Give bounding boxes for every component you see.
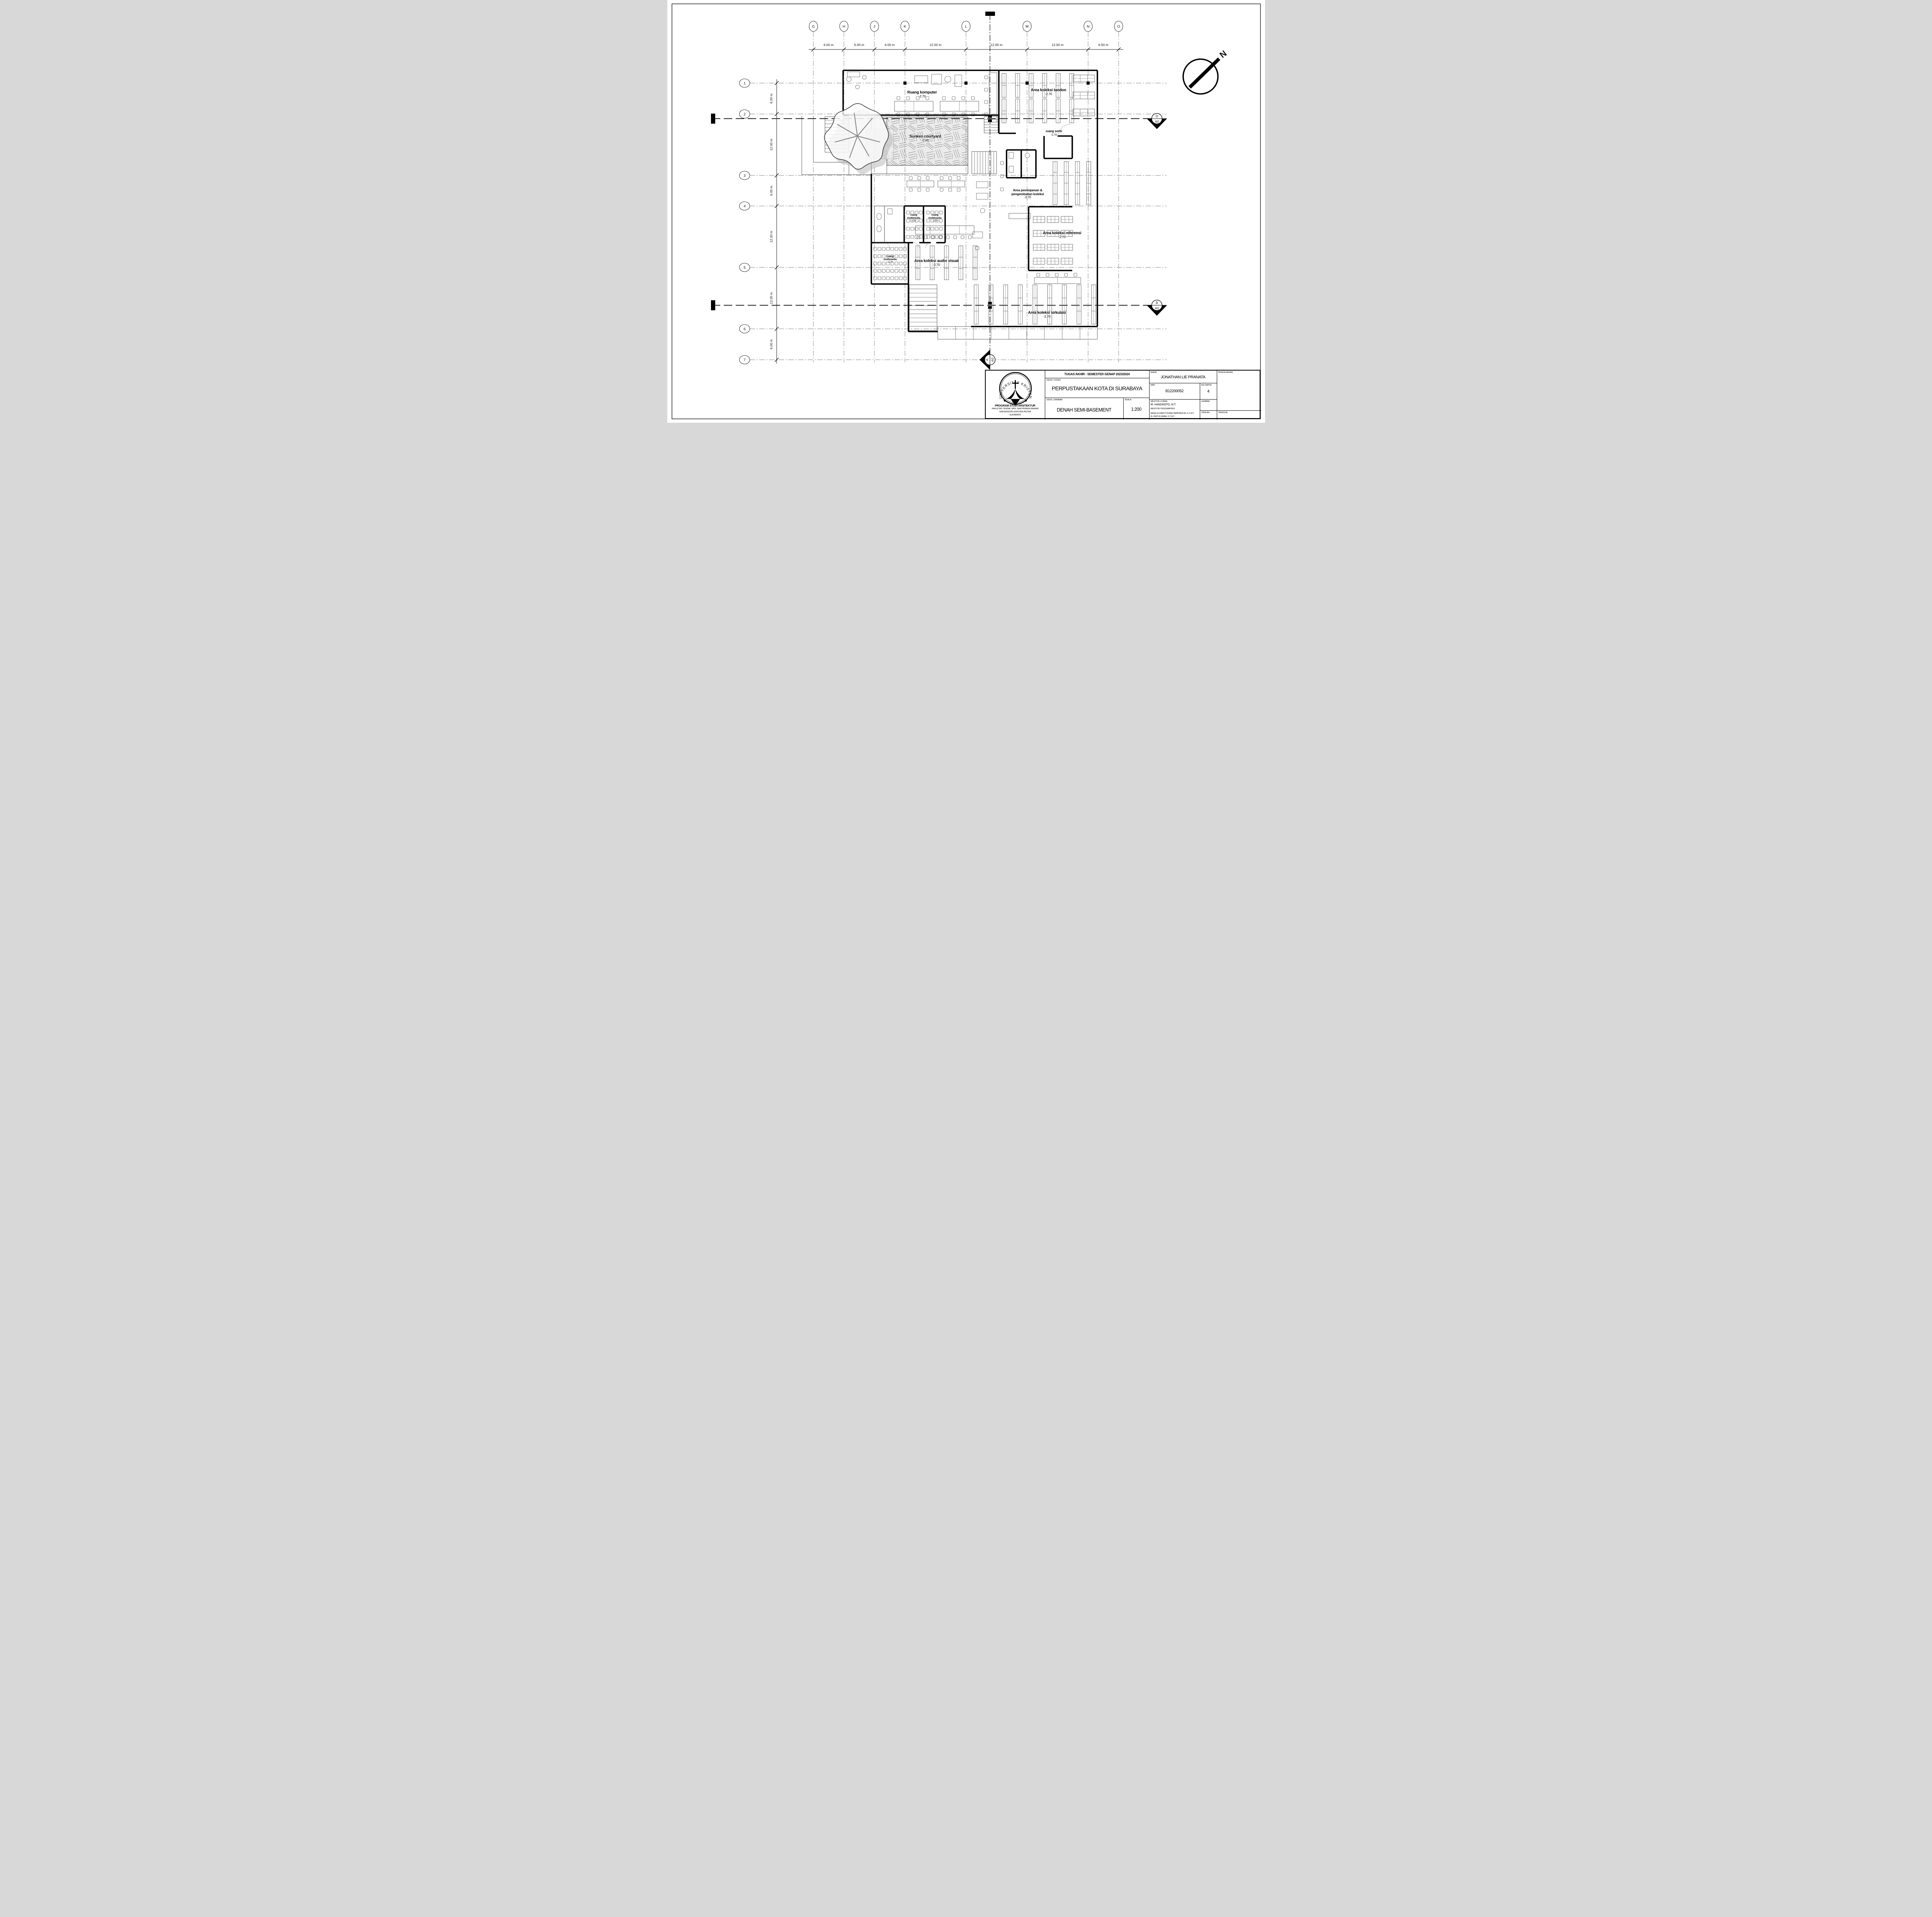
room-label-area-koleksi-referensi: Area koleksi referensi-2.70	[1043, 231, 1082, 239]
room-label-area-koleksi-sirkulasi: Area koleksi sirkulasi-2.70	[1028, 311, 1066, 319]
toilet-fixture	[877, 226, 881, 232]
column-span-label: 6.00 m	[884, 43, 895, 47]
row-span-label: 12.00 m	[769, 139, 773, 151]
chair	[940, 188, 943, 191]
room-level: -2.70	[914, 263, 959, 267]
chair	[1055, 273, 1058, 276]
judul-gambar-label: JUDUL GAMBAR	[1046, 399, 1063, 401]
chair	[971, 97, 975, 100]
room-name: ruang multimedia	[907, 214, 920, 219]
lounge-sofa	[976, 182, 988, 188]
chair	[899, 262, 902, 265]
planter	[862, 75, 866, 79]
mentor-utama-label: MENTOR UTAMA	[1151, 400, 1168, 403]
chair	[897, 97, 900, 100]
chair	[906, 235, 910, 238]
room-level: -2.70	[929, 219, 942, 222]
chair	[935, 227, 938, 230]
chair	[899, 255, 902, 258]
chair	[949, 177, 952, 180]
room-label-ruang-sortir: ruang sortir-2.70	[1046, 130, 1062, 136]
grid-bubble-label: M	[1026, 25, 1029, 29]
chair	[874, 262, 877, 265]
chair	[899, 277, 902, 280]
toilet-fixture	[877, 213, 881, 219]
grid-bubble-label: L	[965, 25, 967, 29]
mentor-utama: IR. HANDINOTO, M.T.	[1151, 403, 1176, 406]
section-marker-d: DA0	[1147, 114, 1167, 129]
lounge-chair	[955, 75, 962, 87]
column-marker	[964, 82, 968, 85]
column-span-label: 6.00 m	[854, 43, 864, 47]
sink	[888, 209, 892, 214]
jumlah-label: JUMLAH	[1201, 412, 1210, 414]
room-level: -2.70	[884, 261, 897, 264]
chair	[968, 236, 971, 239]
title-block: UNIVERSITAS KRISTEN PETRA	[985, 370, 1260, 419]
chair	[939, 227, 942, 230]
row-span-label: 6.00 m	[769, 186, 773, 196]
mentor-pendamping-1: ANGELA CHRISTYSONIA TAMPUBOLON, S.T.,M.T…	[1151, 412, 1194, 415]
chair	[911, 227, 914, 230]
chair	[935, 235, 938, 238]
chair	[961, 236, 964, 239]
lounge-chair	[932, 74, 942, 84]
toilet-fixture	[1009, 166, 1014, 172]
university-logo: UNIVERSITAS KRISTEN PETRA	[986, 371, 1045, 405]
grid-bubble-label: N	[1087, 25, 1089, 29]
tanggal-cell: TANGGAL	[1217, 410, 1261, 420]
section-node	[988, 302, 992, 304]
room-level: -2.70	[907, 95, 937, 99]
mentor-pendamping-2: Dr. FENY ELSIANA, S.T.,M.T.	[1151, 415, 1175, 418]
column-span-label: 12.00 m	[1051, 43, 1063, 47]
row-span-label: 12.00 m	[769, 231, 773, 243]
section-node	[988, 306, 992, 309]
section-end-bar	[985, 12, 995, 16]
chair	[882, 247, 885, 250]
grid-bubble-label: 1	[743, 82, 745, 86]
chair	[886, 269, 889, 272]
section-node	[988, 119, 992, 122]
room-label-sunken-courtyard: Sunken courtyard-2.85	[910, 134, 941, 143]
pengesahan-cell: PENGESAHAN	[1217, 371, 1261, 410]
kelompok-label: KELOMPOK	[1201, 384, 1212, 386]
nama-label: NAMA	[1151, 371, 1157, 374]
chair	[878, 269, 881, 272]
room-level: -2.70	[1043, 235, 1082, 239]
chair	[1000, 175, 1003, 178]
project-title: PERPUSTAKAAN KOTA DI SURABAYA	[1045, 385, 1149, 391]
grid-bubble-label: 4	[743, 204, 745, 209]
grid-bubble-label: 3	[743, 174, 745, 178]
room-label-ruang-multimedia-1: ruang multimedia-2.70	[907, 214, 920, 222]
column-span-label: 6.00 m	[823, 43, 833, 47]
grid-bubble-label: H	[842, 25, 845, 29]
scale-value: 1:200	[1124, 407, 1149, 412]
chair	[926, 188, 929, 191]
chair	[918, 177, 921, 180]
floor-plan-sheet: 6.00 m6.00 m6.00 m12.00 m12.00 m12.00 m6…	[667, 0, 1265, 423]
chair	[1037, 273, 1040, 276]
column-span-label: 12.00 m	[990, 43, 1002, 47]
room-level: -2.70	[1011, 196, 1044, 199]
lounge-sofa	[915, 76, 928, 83]
kelompok-cell: KELOMPOK 4	[1200, 383, 1217, 399]
jumlah-cell: JUMLAH	[1200, 410, 1217, 420]
column-marker	[1087, 82, 1090, 85]
chair	[942, 97, 946, 100]
section-sheet: A0	[1155, 306, 1159, 310]
grid-bubble-label: 7	[743, 358, 745, 362]
chair	[985, 88, 988, 91]
chair	[895, 277, 898, 280]
sink	[1025, 153, 1030, 158]
grid-bubble-label: 2	[743, 112, 745, 117]
column-marker	[903, 82, 906, 85]
institution-cell: UNIVERSITAS KRISTEN PETRA	[986, 371, 1045, 420]
chair	[931, 227, 934, 230]
room-level: -2.70	[907, 219, 920, 222]
grid-bubble-label: G	[812, 25, 815, 29]
skala-label: SKALA	[1125, 399, 1132, 401]
institution-lines: PROGRAM STUDI ARSITEKTUR FAKULTAS TEKNIK…	[986, 404, 1045, 417]
section-marker-b: BA0	[1147, 300, 1167, 316]
room-name: ruang multimedia	[884, 255, 897, 261]
stairs	[972, 151, 997, 174]
grid-bubble-label: O	[1117, 25, 1120, 29]
nrp-label: NRP	[1151, 384, 1155, 386]
chair	[1046, 273, 1049, 276]
chair	[946, 236, 949, 239]
section-sheet: A0	[1155, 120, 1159, 124]
institution-line: SURABAYA	[986, 414, 1045, 417]
room-label-area-koleksi-audio-visual: Area koleksi audio visual-2.70	[914, 259, 959, 267]
service-desk	[1009, 213, 1031, 219]
chair	[949, 188, 952, 191]
room-level: -2.70	[1046, 133, 1062, 136]
chair	[1000, 162, 1003, 165]
room-name: ruang multimedia	[929, 214, 942, 219]
chair	[891, 277, 894, 280]
student-name: JONATHAN LIE PRANATA	[1150, 375, 1217, 379]
nrp-cell: NRP B12200052	[1149, 383, 1200, 399]
kelompok-value: 4	[1200, 389, 1217, 394]
student-nrp: B12200052	[1150, 389, 1200, 393]
mentor-cell: MENTOR UTAMA IR. HANDINOTO, M.T. MENTOR …	[1149, 399, 1200, 420]
column-marker	[1026, 82, 1029, 85]
row-span-label: 12.00 m	[769, 292, 773, 304]
mentor-pendamping-label: MENTOR PENDAMPING	[1151, 408, 1175, 410]
bench	[847, 72, 860, 77]
lembar-label: LEMBAR	[1201, 400, 1210, 403]
chair	[899, 269, 902, 272]
lounge-sofa	[976, 193, 988, 199]
lembar-cell: LEMBAR	[1200, 399, 1217, 410]
coffee-table	[945, 76, 951, 82]
room-label-ruang-komputer: Ruang komputer-2.70	[907, 90, 937, 99]
chair	[886, 277, 889, 280]
site-layer	[672, 4, 1260, 419]
section-sheet: A0	[990, 358, 994, 362]
grid-bubble-label: 5	[743, 266, 745, 270]
room-label-ruang-multimedia-3: ruang multimedia-2.70	[884, 255, 897, 264]
chair	[926, 177, 929, 180]
room-level: -2.70	[1028, 315, 1066, 319]
chair	[906, 227, 910, 230]
chair	[878, 255, 881, 258]
chair	[1000, 188, 1003, 191]
chair	[895, 269, 898, 272]
chair	[940, 177, 943, 180]
chair	[985, 76, 988, 79]
judul-gambar-cell: JUDUL GAMBAR DENAH SEMI-BASEMENT	[1045, 398, 1123, 420]
coffee-table	[980, 208, 985, 213]
institution-line: UNIVERSITAS KRISTEN PETRA	[986, 411, 1045, 414]
chair	[1074, 273, 1077, 276]
terrace-strip	[938, 327, 1097, 339]
chair	[911, 235, 914, 238]
drawing-title: DENAH SEMI-BASEMENT	[1045, 407, 1123, 413]
room-name: Area peminjaman & pengembalian koleksi	[1011, 189, 1044, 196]
grid-bubble-label: 6	[743, 327, 745, 332]
chair	[927, 227, 930, 230]
planter	[855, 85, 859, 89]
chair	[874, 255, 877, 258]
room-label-area-peminjaman: Area peminjaman & pengembalian koleksi-2…	[1011, 189, 1044, 199]
section-marker-a: AA0	[980, 350, 995, 370]
chair	[952, 97, 955, 100]
section-letter: D	[1155, 114, 1158, 118]
grid-lines-layer: 6.00 m6.00 m6.00 m12.00 m12.00 m12.00 m6…	[750, 32, 1167, 364]
chair	[918, 188, 921, 191]
annotation-layer: GHJKLMNO1234567NDA0BA0AA0	[739, 21, 1228, 370]
chair	[909, 188, 912, 191]
room-label-ruang-multimedia-2: ruang multimedia-2.70	[929, 214, 942, 222]
door-swing	[884, 243, 890, 249]
chair	[878, 277, 881, 280]
door-swing	[914, 243, 919, 248]
north-label: N	[1218, 48, 1228, 60]
pengesahan-label: PENGESAHAN	[1218, 371, 1233, 374]
column-span-label: 12.00 m	[929, 43, 941, 47]
chair	[878, 247, 881, 250]
chair	[878, 262, 881, 265]
chair	[1065, 273, 1068, 276]
room-label-area-koleksi-tandon: Area koleksi tandon-2.70	[1031, 88, 1066, 96]
section-letter: A	[985, 359, 989, 361]
chair	[891, 247, 894, 250]
grid-bubble-label: K	[903, 25, 906, 29]
tanggal-label: TANGGAL	[1218, 412, 1228, 414]
section-end-bar	[711, 114, 715, 124]
floor-plan-drawing: 6.00 m6.00 m6.00 m12.00 m12.00 m12.00 m6…	[667, 0, 1265, 423]
institution-line: PROGRAM STUDI ARSITEKTUR	[986, 404, 1045, 408]
institution-line: FAKULTAS TEKNIK SIPIL DAN PERENCANAAN	[986, 408, 1045, 411]
chair	[962, 97, 965, 100]
north-arrow-needle	[1190, 59, 1219, 87]
titleblock-header: TUGAS AKHIR - SEMESTER GENAP 2023/2024	[1045, 371, 1149, 378]
judul-tugas-cell: JUDUL TUGAS PERPUSTAKAAN KOTA DI SURABAY…	[1045, 378, 1149, 398]
walls-layer	[843, 70, 1097, 332]
page-border	[672, 4, 1260, 419]
planter	[847, 77, 851, 82]
chair	[886, 247, 889, 250]
chair	[919, 227, 922, 230]
toilet-partition	[874, 206, 904, 243]
nama-cell: NAMA JONATHAN LIE PRANATA	[1149, 371, 1217, 383]
chair	[954, 236, 957, 239]
skala-cell: SKALA 1:200	[1123, 398, 1149, 420]
judul-tugas-label: JUDUL TUGAS	[1046, 379, 1061, 381]
chair	[874, 269, 877, 272]
chair	[882, 277, 885, 280]
column-span-label: 6.00 m	[1098, 43, 1108, 47]
grid-bubble-label: J	[873, 25, 875, 29]
chair	[957, 177, 960, 180]
chair	[985, 100, 988, 104]
chair	[882, 269, 885, 272]
room-level: -2.85	[910, 139, 941, 143]
chair	[899, 247, 902, 250]
room-level: -2.70	[1031, 92, 1066, 96]
section-letter: B	[1156, 301, 1158, 305]
chair	[957, 188, 960, 191]
stairs	[909, 285, 937, 330]
chair	[909, 177, 912, 180]
chair	[874, 277, 877, 280]
row-span-label: 6.00 m	[769, 339, 773, 349]
toilet-fixture	[1009, 152, 1014, 158]
chair	[895, 247, 898, 250]
chair	[874, 247, 877, 250]
row-span-label: 6.00 m	[769, 94, 773, 104]
furniture-layer	[847, 72, 1096, 324]
section-end-bar	[711, 300, 715, 310]
chair	[891, 269, 894, 272]
tree-layer	[824, 104, 893, 174]
